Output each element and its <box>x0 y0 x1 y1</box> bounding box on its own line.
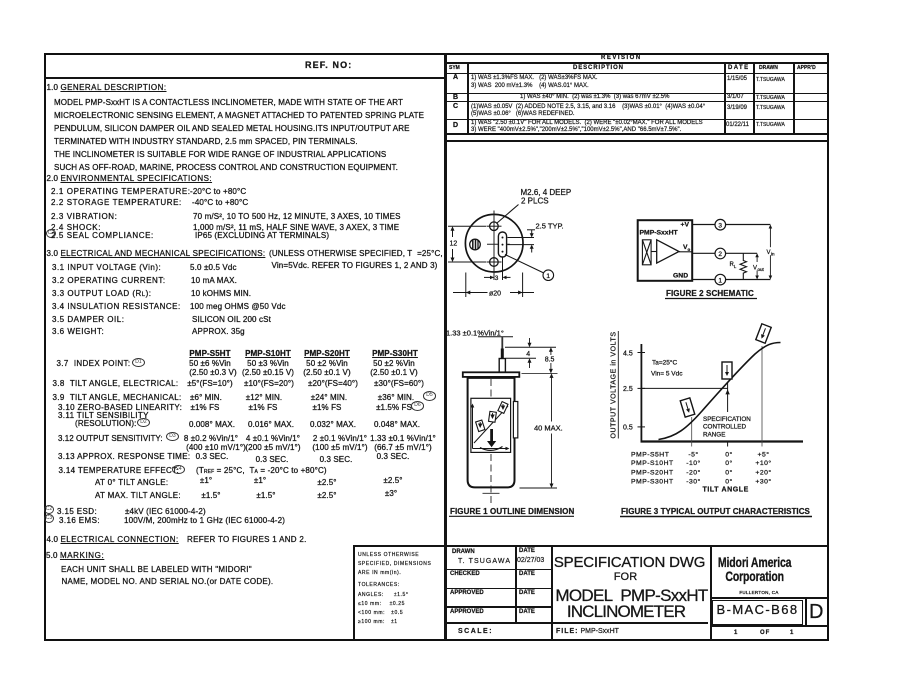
svg-text:V: V <box>753 265 757 271</box>
svg-text:PMP-S30HT: PMP-S30HT <box>631 479 674 486</box>
svg-text:2.5: 2.5 <box>623 386 633 393</box>
svg-text:4.5: 4.5 <box>623 350 633 357</box>
svg-text:0.5: 0.5 <box>623 425 633 432</box>
svg-text:1: 1 <box>546 273 550 280</box>
svg-text:8.5: 8.5 <box>545 357 555 364</box>
svg-text:PMP-S10HT: PMP-S10HT <box>631 460 674 467</box>
svg-text:PMP-S5HT: PMP-S5HT <box>631 452 669 459</box>
svg-text:Ta=25°C: Ta=25°C <box>652 359 677 367</box>
svg-text:PMP-SxxHT: PMP-SxxHT <box>640 230 679 237</box>
svg-text:SPECIFICATION: SPECIFICATION <box>703 416 751 423</box>
svg-text:-30°: -30° <box>686 478 701 486</box>
svg-text:GND: GND <box>673 273 688 280</box>
svg-text:0°: 0° <box>725 478 733 486</box>
svg-text:+5°: +5° <box>758 451 770 459</box>
svg-text:4: 4 <box>526 351 530 358</box>
svg-text:0°: 0° <box>725 459 733 467</box>
svg-text:out: out <box>758 267 765 272</box>
svg-text:0°: 0° <box>725 451 733 459</box>
svg-text:-20°: -20° <box>686 469 701 477</box>
svg-text:3: 3 <box>495 275 499 282</box>
svg-text:ø20: ø20 <box>489 291 501 298</box>
svg-text:12: 12 <box>450 241 458 248</box>
svg-text:2 PLCS: 2 PLCS <box>521 197 549 206</box>
svg-text:0°: 0° <box>725 469 733 477</box>
svg-text:+10°: +10° <box>755 459 771 467</box>
svg-text:-10°: -10° <box>686 459 701 467</box>
svg-text:1: 1 <box>718 277 722 284</box>
svg-text:40 MAX.: 40 MAX. <box>534 424 563 433</box>
svg-text:+V: +V <box>681 221 690 228</box>
svg-text:2.5 TYP.: 2.5 TYP. <box>536 222 564 231</box>
svg-text:TILT ANGLE: TILT ANGLE <box>703 487 749 494</box>
svg-text:-5°: -5° <box>688 451 698 459</box>
svg-text:FIGURE 3 TYPICAL OUTPUT CHARA: FIGURE 3 TYPICAL OUTPUT CHARACTERISTICS <box>621 507 811 516</box>
svg-text:in: in <box>771 252 775 257</box>
svg-text:2: 2 <box>718 251 722 258</box>
svg-text:CONTROLLED: CONTROLLED <box>703 424 746 431</box>
svg-text:RANGE: RANGE <box>703 431 725 438</box>
svg-text:3: 3 <box>718 223 722 230</box>
svg-text:FIGURE 1 OUTLINE DIMENSION: FIGURE 1 OUTLINE DIMENSION <box>450 507 575 516</box>
svg-text:+30°: +30° <box>755 478 771 486</box>
svg-text:PMP-S20HT: PMP-S20HT <box>631 470 674 477</box>
svg-text:1.33 ±0.1%Vin/1°: 1.33 ±0.1%Vin/1° <box>446 329 504 338</box>
svg-text:OUTPUT VOLTAGE in VOLTS: OUTPUT VOLTAGE in VOLTS <box>611 331 618 438</box>
svg-text:+20°: +20° <box>755 469 771 477</box>
svg-text:FIGURE 2 SCHEMATIC: FIGURE 2 SCHEMATIC <box>666 289 754 298</box>
svg-text:Vin= 5 Vdc: Vin= 5 Vdc <box>651 371 683 378</box>
svg-text:L: L <box>734 264 737 269</box>
svg-text:V: V <box>767 250 771 256</box>
